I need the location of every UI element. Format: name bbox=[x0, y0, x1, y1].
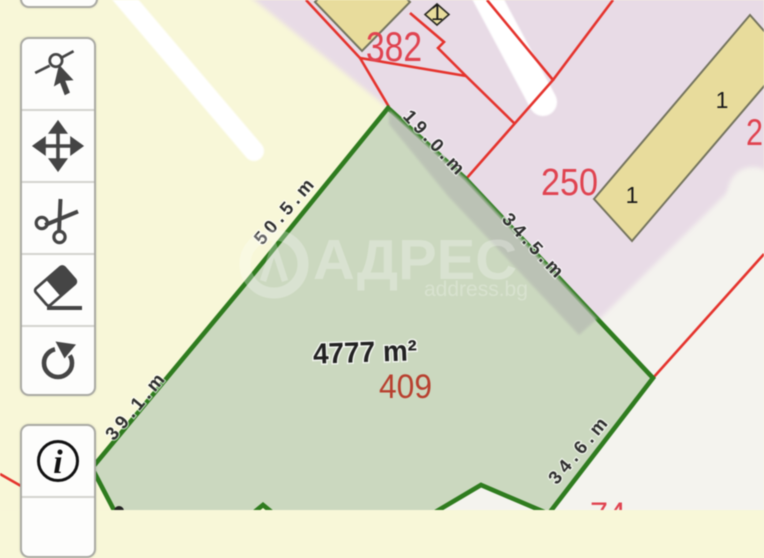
svg-text:1: 1 bbox=[716, 87, 729, 113]
svg-text:74: 74 bbox=[590, 496, 626, 510]
svg-text:409: 409 bbox=[379, 368, 432, 406]
svg-text:250: 250 bbox=[541, 162, 598, 204]
svg-text:1: 1 bbox=[626, 182, 639, 208]
svg-text:i: i bbox=[53, 444, 63, 481]
svg-text:1: 1 bbox=[431, 0, 443, 25]
svg-text:382: 382 bbox=[366, 23, 422, 70]
svg-text:2: 2 bbox=[746, 112, 763, 153]
svg-text:4777 m²: 4777 m² bbox=[313, 335, 418, 371]
svg-text:address.bg: address.bg bbox=[424, 278, 528, 301]
